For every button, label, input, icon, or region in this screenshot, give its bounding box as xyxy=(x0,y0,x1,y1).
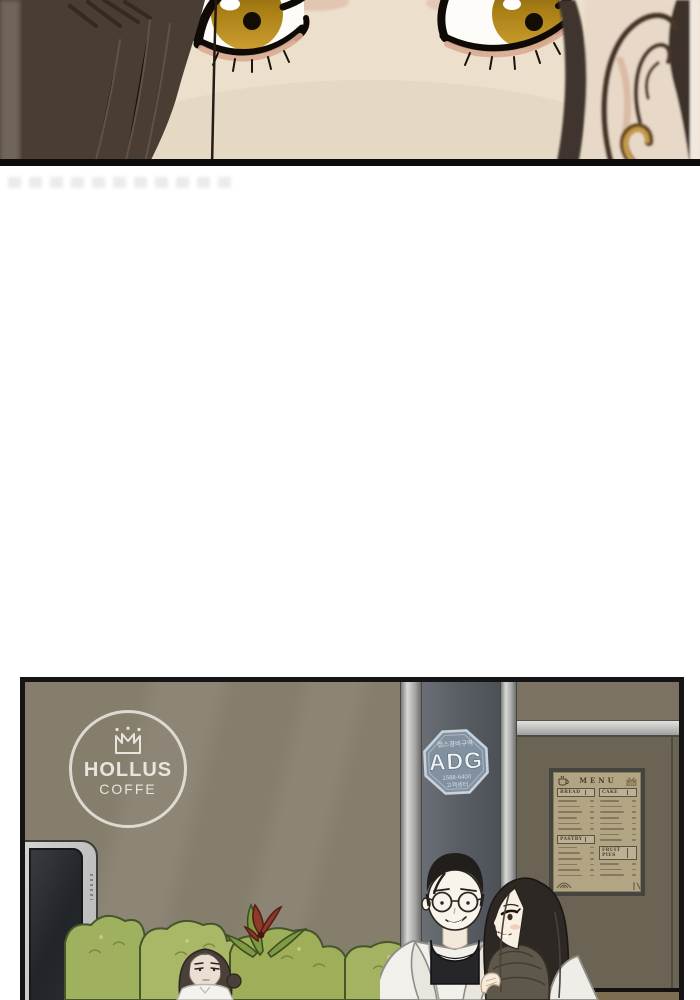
faint-print-marks xyxy=(8,177,236,188)
menu-item-row xyxy=(558,822,595,825)
menu-item-row xyxy=(600,805,637,808)
menu-item-row xyxy=(600,828,637,831)
background-woman xyxy=(155,937,265,1000)
door-top-wall xyxy=(517,682,679,721)
panel-eyes-closeup xyxy=(0,0,700,166)
menu-item-row xyxy=(558,816,595,819)
woman-long-hair xyxy=(481,878,598,1000)
menu-item-row xyxy=(600,811,637,814)
menu-item-row xyxy=(558,800,595,803)
menu-item-row xyxy=(600,833,637,836)
hollus-coffee-logo: HOLLUS COFFE xyxy=(69,710,187,828)
menu-section-header: CAKE xyxy=(599,788,637,797)
menu-title: MENU xyxy=(579,776,617,785)
menu-item-row xyxy=(600,839,637,842)
menu-section: CAKE xyxy=(599,788,637,842)
menu-item-row xyxy=(558,811,595,814)
logo-text-hollus: HOLLUS xyxy=(72,759,184,781)
door-metal-bar xyxy=(517,721,679,737)
menu-item-row xyxy=(558,805,595,808)
panel-border-bottom xyxy=(0,159,700,166)
eyes-closeup-art xyxy=(0,0,700,166)
menu-item-row xyxy=(600,800,637,803)
couple xyxy=(380,850,680,1000)
badge-brand: ADG xyxy=(428,747,483,776)
menu-section-header: PASTRY xyxy=(557,835,595,844)
menu-section-header: BREAD xyxy=(557,788,595,797)
logo-text-coffe: COFFE xyxy=(72,781,184,797)
ear-and-hair-right xyxy=(556,0,700,166)
webtoon-page: HOLLUS COFFE xyxy=(0,0,700,1000)
menu-item-row xyxy=(600,816,637,819)
adg-security-badge: 캡스경비구역 ADG 1588-6400 고객센터 xyxy=(421,727,490,796)
menu-section: BREAD xyxy=(557,788,595,831)
crown-icon xyxy=(110,726,146,754)
menu-item-row xyxy=(558,846,595,849)
menu-item-row xyxy=(558,828,595,831)
castle-icon xyxy=(626,776,637,786)
menu-item-row xyxy=(600,822,637,825)
coffee-cup-icon xyxy=(557,775,570,786)
panel-storefront: HOLLUS COFFE xyxy=(20,677,684,1000)
